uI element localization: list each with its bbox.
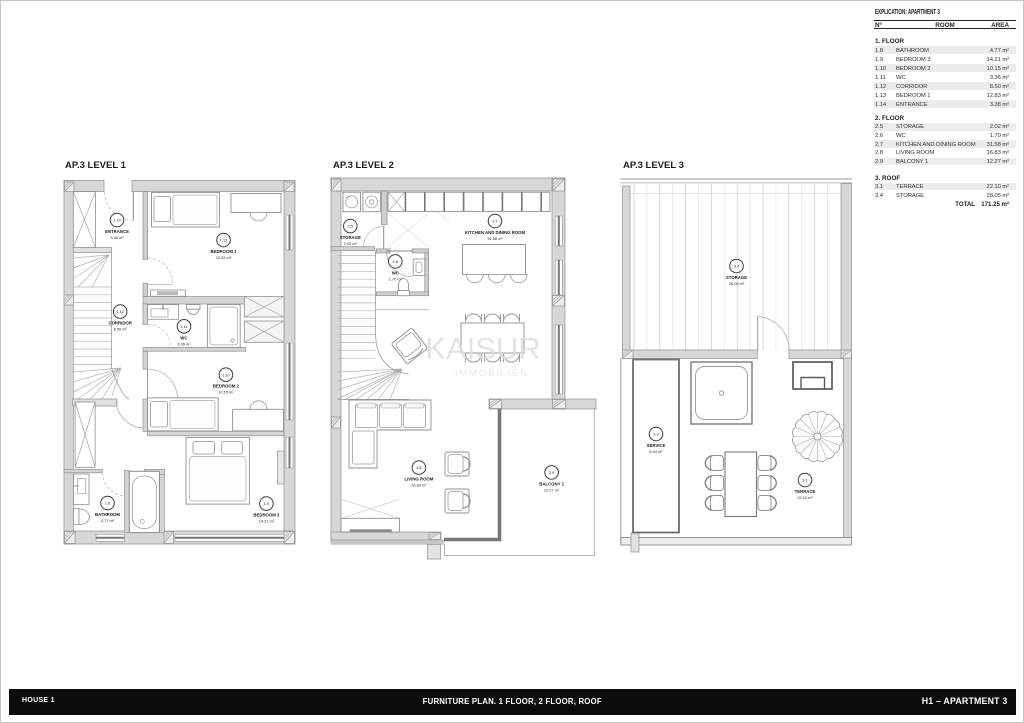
- svg-text:KITCHEN AND DINING ROOM: KITCHEN AND DINING ROOM: [465, 230, 526, 235]
- svg-text:22.10 m²: 22.10 m²: [797, 495, 813, 500]
- svg-text:TERRACE: TERRACE: [795, 489, 816, 494]
- svg-text:1.12: 1.12: [117, 310, 124, 314]
- svg-text:LIVING ROOM: LIVING ROOM: [404, 477, 433, 482]
- svg-text:31.58 m²: 31.58 m²: [487, 236, 503, 241]
- svg-text:WC: WC: [180, 335, 187, 340]
- svg-text:3.4: 3.4: [734, 265, 739, 269]
- svg-text:8.50 m²: 8.50 m²: [114, 327, 128, 332]
- svg-text:IMMOBILIEN: IMMOBILIEN: [455, 368, 529, 379]
- svg-text:2.9: 2.9: [549, 471, 554, 475]
- svg-text:14.21 m²: 14.21 m²: [259, 519, 275, 524]
- svg-text:16.83 m²: 16.83 m²: [411, 483, 427, 488]
- svg-text:1.70 m²: 1.70 m²: [389, 276, 403, 281]
- svg-text:6.04 m²: 6.04 m²: [649, 449, 663, 454]
- svg-text:28.05 m²: 28.05 m²: [729, 281, 745, 286]
- svg-text:1.14: 1.14: [113, 219, 120, 223]
- svg-text:SERVICE: SERVICE: [647, 443, 666, 448]
- svg-text:STORAGE: STORAGE: [340, 235, 361, 240]
- svg-text:2.6: 2.6: [393, 260, 398, 264]
- svg-text:4.77 m²: 4.77 m²: [101, 518, 115, 523]
- svg-text:AP.3 LEVEL 2: AP.3 LEVEL 2: [333, 160, 394, 171]
- svg-text:3.38 m²: 3.38 m²: [110, 235, 124, 240]
- svg-text:BEDROOM 2: BEDROOM 2: [213, 384, 240, 389]
- svg-text:1.13: 1.13: [220, 239, 227, 243]
- svg-text:BEDROOM 3: BEDROOM 3: [253, 513, 280, 518]
- svg-text:10.15 m²: 10.15 m²: [218, 390, 234, 395]
- svg-text:3.3: 3.3: [653, 433, 658, 437]
- svg-text:3.36 m²: 3.36 m²: [177, 341, 191, 346]
- svg-text:BALCONY 1: BALCONY 1: [539, 481, 564, 486]
- svg-text:BATHROOM: BATHROOM: [95, 512, 120, 517]
- svg-text:KAISUR: KAISUR: [425, 331, 540, 366]
- svg-text:1.9: 1.9: [264, 502, 269, 506]
- svg-text:CORRIDOR: CORRIDOR: [108, 321, 132, 326]
- svg-text:AP.3 LEVEL 3: AP.3 LEVEL 3: [623, 160, 684, 171]
- svg-text:WC: WC: [392, 270, 399, 275]
- svg-text:2.7: 2.7: [492, 220, 497, 224]
- svg-text:2.02 m²: 2.02 m²: [344, 241, 358, 246]
- svg-text:12.27 m²: 12.27 m²: [544, 487, 560, 492]
- svg-text:BEDROOM 1: BEDROOM 1: [210, 249, 237, 254]
- svg-text:ENTRANCE: ENTRANCE: [105, 229, 129, 234]
- svg-text:AP.3 LEVEL 1: AP.3 LEVEL 1: [65, 160, 127, 171]
- svg-text:12.83 m²: 12.83 m²: [216, 255, 232, 260]
- svg-text:2.5: 2.5: [348, 225, 353, 229]
- svg-text:1.8: 1.8: [105, 502, 110, 506]
- svg-text:3.1: 3.1: [802, 479, 807, 483]
- svg-text:1.11: 1.11: [180, 325, 187, 329]
- svg-text:STORAGE: STORAGE: [726, 275, 747, 280]
- svg-text:1.10: 1.10: [222, 373, 229, 377]
- svg-text:2.8: 2.8: [416, 466, 421, 470]
